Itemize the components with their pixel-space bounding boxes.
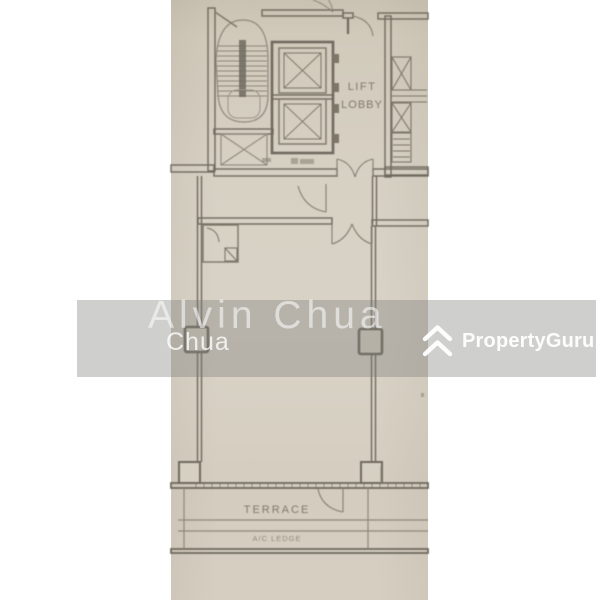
terrace-label: TERRACE — [244, 504, 311, 516]
ac-ledge-label: A/C LEDGE — [252, 534, 301, 543]
store-closet — [203, 225, 238, 262]
lift-lobby-label-line2: LOBBY — [341, 99, 383, 111]
walls — [171, 8, 428, 553]
stair-centre-rail — [239, 40, 246, 97]
propertyguru-logo-icon — [421, 324, 454, 358]
propertyguru-logo: PropertyGuru — [421, 323, 594, 359]
watermark-band: Alvin Chua Chua PropertyGuru — [77, 300, 596, 377]
service-shafts — [391, 57, 427, 162]
watermark-agent-name-small: Chua — [166, 329, 230, 355]
lift-shafts — [279, 48, 339, 144]
staircase — [215, 12, 268, 122]
lift-lobby-label-line1: LIFT — [348, 81, 377, 93]
screenshot-stage: LIFT LOBBY TERRACE A/C LEDGE Alvin Chua … — [0, 0, 600, 600]
stair-shaft — [221, 134, 267, 165]
propertyguru-logo-text: PropertyGuru — [462, 330, 594, 353]
